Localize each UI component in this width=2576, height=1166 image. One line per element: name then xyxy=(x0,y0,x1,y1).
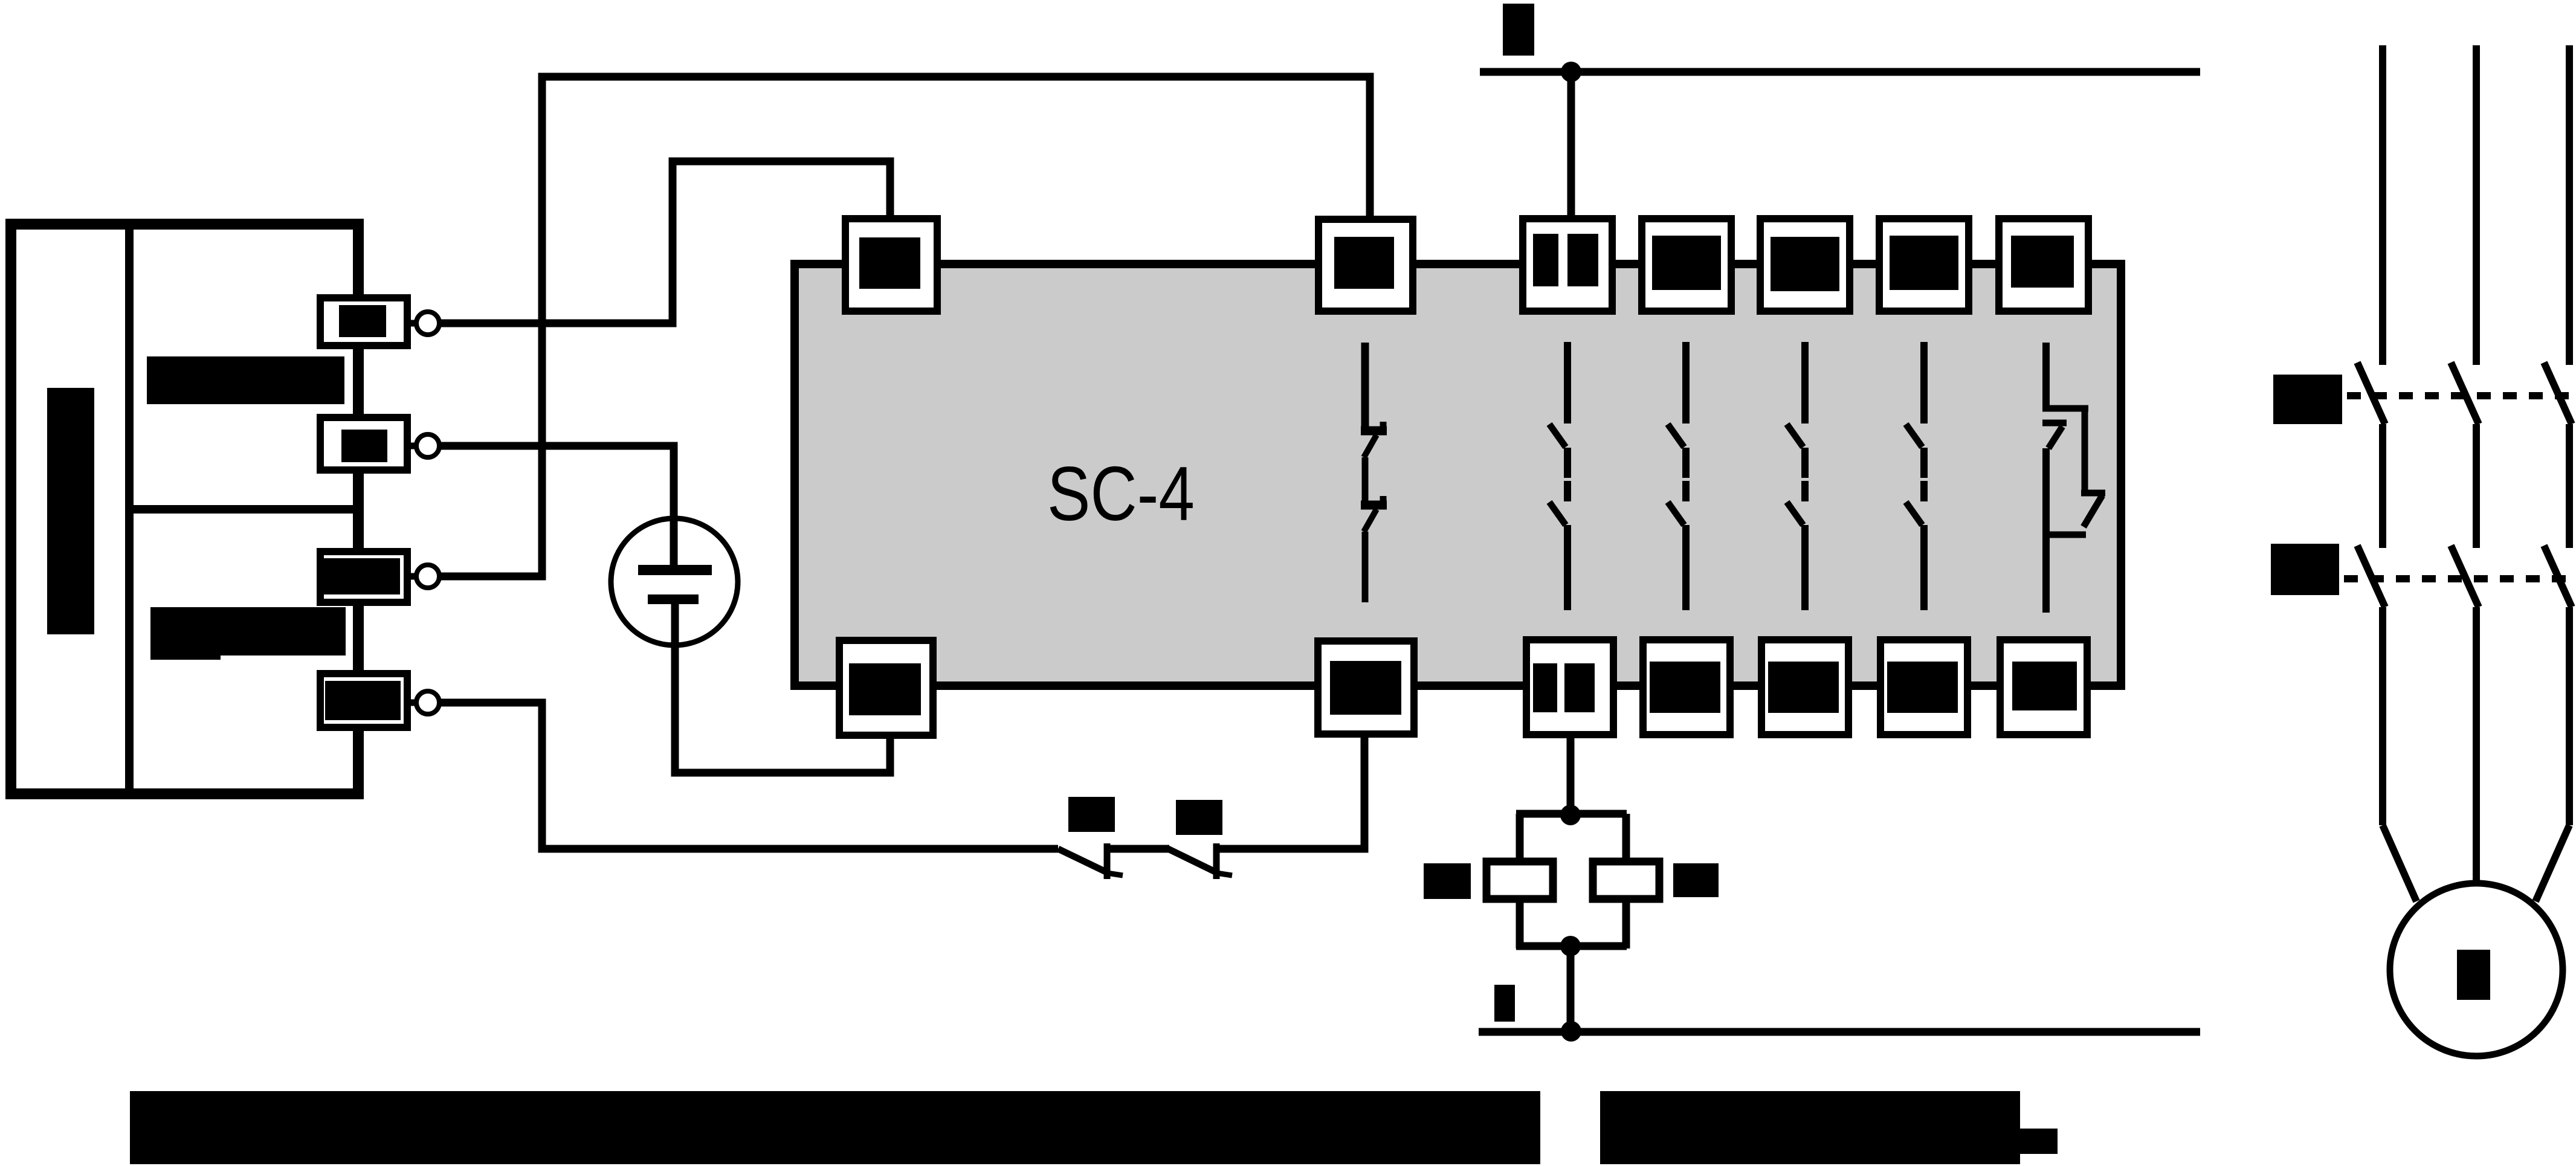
svg-text:SC-4: SC-4 xyxy=(1047,451,1195,536)
